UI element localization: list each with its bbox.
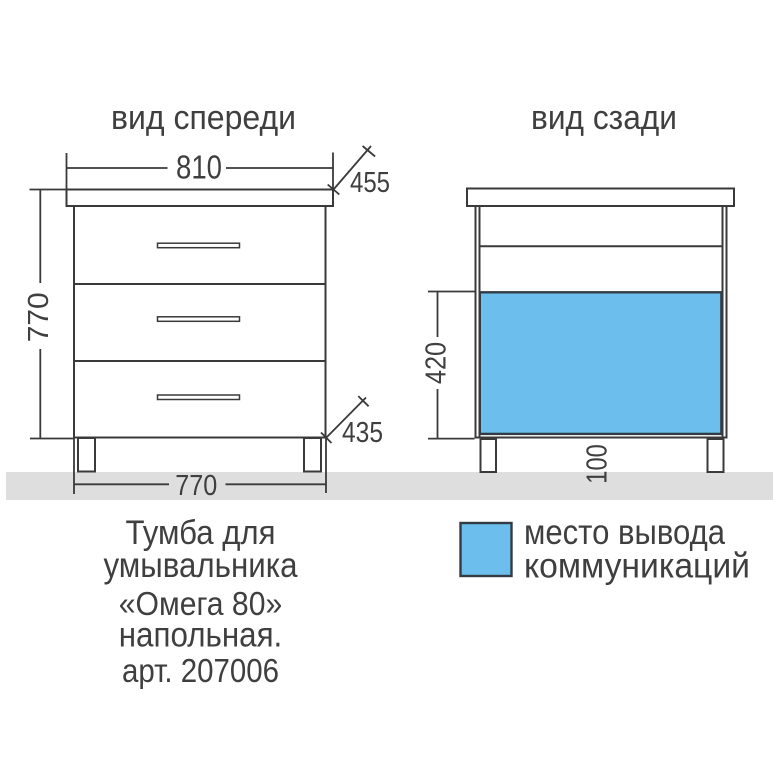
svg-text:арт. 207006: арт. 207006 bbox=[122, 652, 279, 689]
svg-text:умывальника: умывальника bbox=[104, 546, 298, 585]
svg-text:напольная.: напольная. bbox=[119, 616, 283, 655]
svg-text:420: 420 bbox=[421, 342, 453, 384]
svg-text:770: 770 bbox=[175, 470, 217, 502]
svg-text:770: 770 bbox=[23, 292, 55, 342]
svg-text:вид сзади: вид сзади bbox=[531, 99, 677, 137]
svg-text:100: 100 bbox=[582, 444, 614, 483]
svg-text:810: 810 bbox=[176, 149, 222, 186]
svg-text:коммуникаций: коммуникаций bbox=[524, 547, 750, 586]
svg-text:435: 435 bbox=[342, 417, 383, 449]
svg-text:455: 455 bbox=[350, 167, 390, 199]
svg-text:вид спереди: вид спереди bbox=[111, 99, 296, 137]
